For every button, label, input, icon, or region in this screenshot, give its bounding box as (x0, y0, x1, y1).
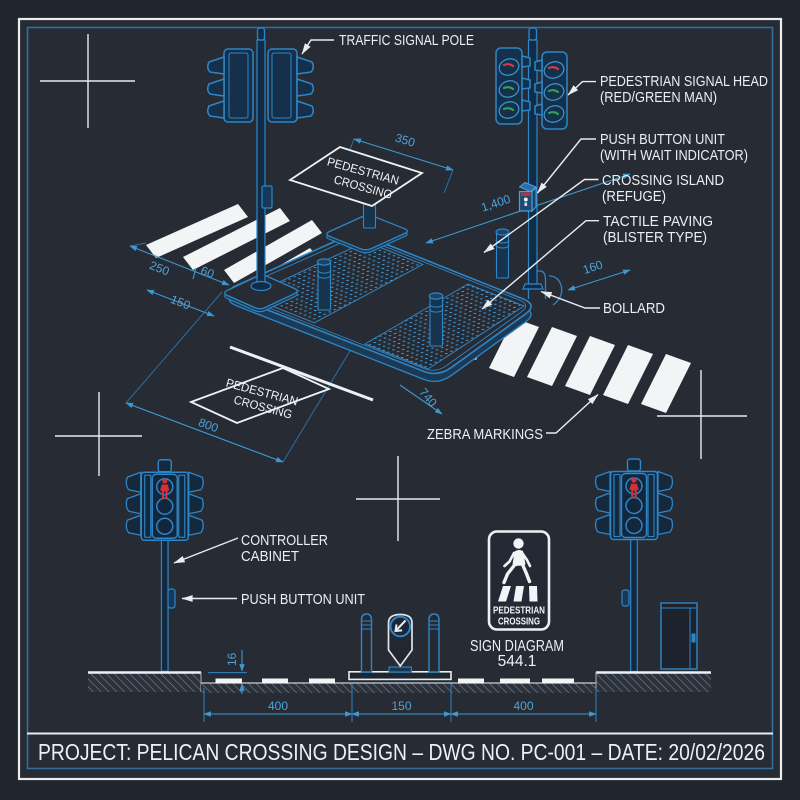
svg-text:PUSH BUTTON UNIT: PUSH BUTTON UNIT (241, 591, 365, 608)
svg-text:TRAFFIC SIGNAL POLE: TRAFFIC SIGNAL POLE (339, 32, 474, 49)
svg-text:CROSSING ISLAND: CROSSING ISLAND (602, 172, 724, 189)
svg-text:(WITH WAIT INDICATOR): (WITH WAIT INDICATOR) (600, 147, 748, 164)
svg-text:PEDESTRIAN SIGNAL HEAD: PEDESTRIAN SIGNAL HEAD (600, 73, 768, 90)
svg-text:544.1: 544.1 (498, 653, 537, 670)
svg-text:BOLLARD: BOLLARD (603, 300, 665, 317)
svg-text:16: 16 (225, 652, 239, 666)
svg-text:PEDESTRIAN: PEDESTRIAN (493, 606, 545, 617)
svg-text:(BLISTER TYPE): (BLISTER TYPE) (603, 229, 707, 246)
svg-text:400: 400 (268, 699, 288, 713)
svg-text:400: 400 (513, 699, 533, 713)
svg-text:ZEBRA MARKINGS: ZEBRA MARKINGS (427, 426, 543, 443)
svg-text:CROSSING: CROSSING (498, 617, 540, 628)
svg-text:TACTILE PAVING: TACTILE PAVING (603, 213, 713, 230)
svg-text:PROJECT: PELICAN CROSSING DESI: PROJECT: PELICAN CROSSING DESIGN – DWG N… (38, 739, 765, 765)
svg-text:(RED/GREEN MAN): (RED/GREEN MAN) (600, 89, 717, 106)
svg-text:(REFUGE): (REFUGE) (602, 188, 666, 205)
svg-text:CONTROLLER: CONTROLLER (241, 532, 328, 549)
svg-text:PUSH BUTTON UNIT: PUSH BUTTON UNIT (600, 131, 725, 148)
svg-text:150: 150 (391, 699, 411, 713)
svg-text:CABINET: CABINET (241, 548, 299, 565)
